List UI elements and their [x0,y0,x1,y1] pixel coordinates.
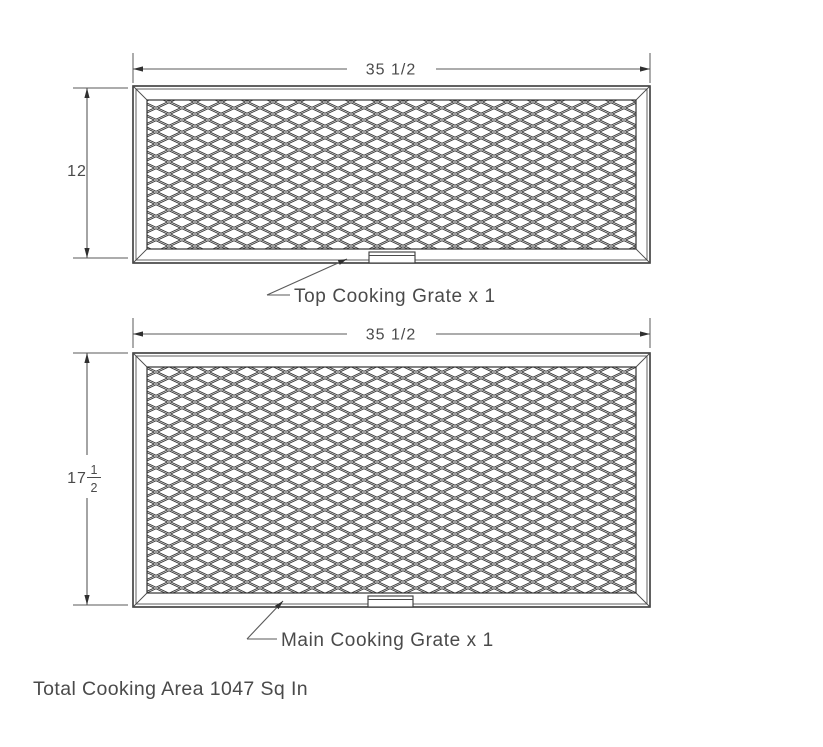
down-arrowhead-icon [84,248,89,258]
cooking-grates-drawing: 35 1/2 12 [0,0,823,747]
right-arrowhead-icon [640,331,650,336]
top-grate-handle [369,252,415,263]
top-grate-height-dim-text: 12 [67,163,87,180]
main-grate-height-dim-whole-text: 17 [67,470,87,487]
main-grate-label-text: Main Cooking Grate x 1 [281,630,494,651]
up-arrowhead-icon [84,353,89,363]
top-grate-leader: Top Cooking Grate x 1 [267,259,496,307]
right-arrowhead-icon [640,66,650,71]
main-grate-width-dim-text: 35 1/2 [366,327,416,344]
up-arrowhead-icon [84,88,89,98]
top-grate-drawing: 35 1/2 12 [67,53,650,307]
top-grate-label-text: Top Cooking Grate x 1 [294,286,496,307]
main-grate-height-dim-numerator-text: 1 [91,463,98,477]
main-grate-handle [368,596,413,607]
main-grate-frame [133,353,650,607]
main-grate-mesh [147,367,636,593]
main-grate-height-dim-denominator-text: 2 [91,481,98,495]
main-grate-height-dimension: 17 1 2 [67,353,128,605]
total-cooking-area-text: Total Cooking Area 1047 Sq In [33,678,308,700]
main-grate-width-dimension: 35 1/2 [133,318,650,348]
drawing-canvas: 35 1/2 12 [0,0,823,747]
top-grate-height-dimension: 12 [67,88,128,258]
left-arrowhead-icon [133,331,143,336]
top-grate-width-dimension: 35 1/2 [133,53,650,83]
left-arrowhead-icon [133,66,143,71]
main-grate-leader: Main Cooking Grate x 1 [247,601,494,651]
top-grate-mesh [147,100,636,249]
down-arrowhead-icon [84,595,89,605]
top-grate-frame [133,86,650,263]
top-grate-width-dim-text: 35 1/2 [366,62,416,79]
main-grate-drawing: 35 1/2 17 1 2 [67,318,650,651]
